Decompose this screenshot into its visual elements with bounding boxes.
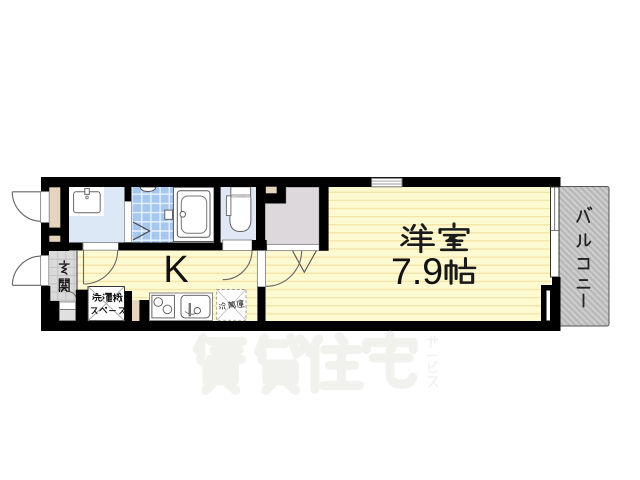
svg-text:7.9: 7.9	[391, 250, 443, 292]
svg-text:K: K	[163, 249, 188, 291]
